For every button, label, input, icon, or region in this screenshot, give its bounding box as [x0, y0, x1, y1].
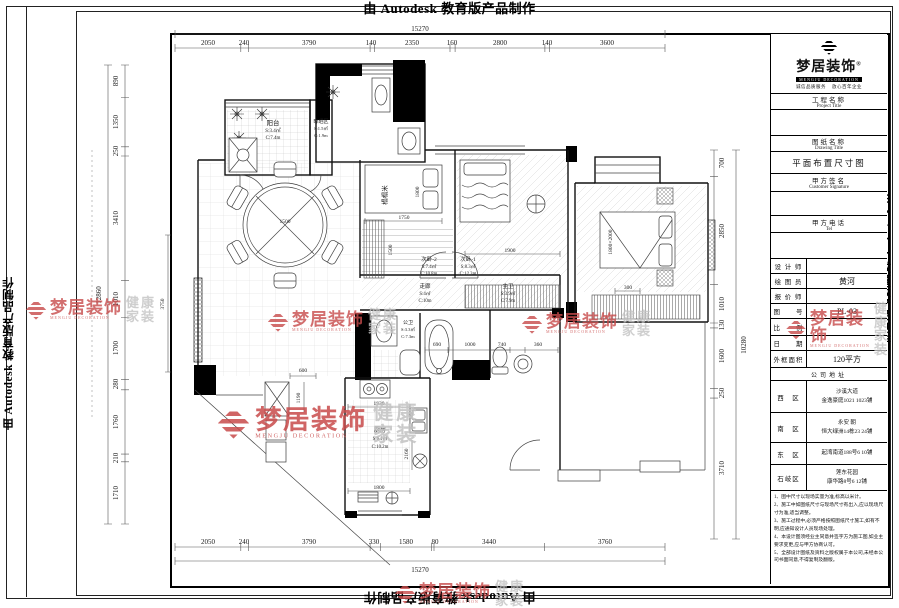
dim-chain-right: 700 2850 1010 130 1600 250 3710 10280 — [710, 150, 748, 539]
notes-list: 1、图中尺寸以现场实量为准,标高以米计。 2、施工中如图纸尺寸与现场尺寸有出入,… — [771, 491, 887, 565]
watermark-diamond-icon — [268, 312, 288, 332]
designer-row: 设 计 师 — [771, 259, 887, 274]
svg-text:330: 330 — [369, 538, 380, 546]
svg-text:140: 140 — [542, 39, 553, 47]
svg-text:1000: 1000 — [465, 342, 476, 348]
note-item: 4、本设计图须经业主同意并签字方为施工图,如业主要求变更,应与甲方协商认可。 — [774, 534, 884, 549]
svg-text:240: 240 — [239, 39, 250, 47]
svg-text:2850: 2850 — [718, 224, 726, 239]
svg-text:280: 280 — [112, 378, 120, 389]
svg-text:S:3.4㎡: S:3.4㎡ — [265, 127, 280, 134]
svg-text:S:7.4㎡: S:7.4㎡ — [422, 263, 437, 270]
svg-text:3750: 3750 — [160, 298, 166, 309]
svg-text:2160: 2160 — [404, 448, 410, 459]
watermark-diamond-icon — [395, 584, 415, 604]
dim-chain-top: 15270 2050 240 3790 140 2350 160 2800 14… — [175, 25, 665, 52]
floor-plan: 15270 2050 240 3790 140 2350 160 2800 14… — [80, 20, 770, 595]
svg-text:1500: 1500 — [388, 244, 394, 255]
dim-chain-left: 890 1350 250 3410 1010 1700 280 1760 210… — [95, 65, 129, 524]
note-item: 3、施工过程中,必须严格按照图纸尺寸施工,如有不明,应通知设计人员现场处理。 — [774, 518, 884, 533]
floorplan-sheet: { "page": {"stamp": "由 Autodesk 教育版产品制作"… — [0, 0, 899, 605]
svg-text:3440: 3440 — [482, 538, 497, 546]
svg-text:走廊: 走廊 — [419, 282, 431, 290]
address-header: 公司地址 — [771, 368, 887, 381]
watermark-logo: 梦居装饰MENGJU DECORATION 健康家装 — [395, 580, 525, 607]
watermark-logo: 梦居装饰MENGJU DECORATION 健康家装 — [786, 302, 899, 357]
svg-text:1800: 1800 — [415, 186, 421, 197]
svg-text:700: 700 — [718, 157, 726, 168]
svg-text:1010: 1010 — [718, 297, 726, 312]
company-name: 梦居装饰® — [796, 56, 861, 76]
watermark-diamond-icon — [218, 408, 249, 439]
svg-text:250: 250 — [718, 387, 726, 398]
svg-text:1700: 1700 — [112, 341, 120, 356]
company-name-en: MENGJU DECORATION — [796, 77, 862, 83]
svg-text:2350: 2350 — [405, 39, 420, 47]
svg-text:210: 210 — [112, 452, 120, 463]
svg-text:1580: 1580 — [399, 538, 414, 546]
guestbath-floor — [373, 350, 398, 378]
svg-text:C:10.2m: C:10.2m — [372, 445, 389, 450]
tel-header: 甲方电话Tel — [771, 216, 887, 233]
watermark-diamond-icon — [786, 319, 806, 339]
dim-chain-bottom: 2050 240 3790 330 1580 80 3440 3760 1527… — [175, 538, 665, 574]
svg-text:690: 690 — [433, 342, 442, 348]
tel-value — [771, 233, 887, 259]
svg-text:C:10m: C:10m — [418, 299, 431, 304]
svg-text:3710: 3710 — [718, 461, 726, 476]
watermark-logo: 梦居装饰MENGJU DECORATION 健康家装 — [268, 308, 398, 335]
note-item: 1、图中尺寸以现场实量为准,标高以米计。 — [774, 494, 884, 501]
svg-text:1800×2000: 1800×2000 — [608, 229, 614, 254]
svg-text:公卫: 公卫 — [403, 320, 413, 326]
project-title-value — [771, 110, 887, 136]
svg-text:2050: 2050 — [201, 39, 216, 47]
svg-text:3790: 3790 — [302, 538, 317, 546]
svg-text:榻榻米: 榻榻米 — [380, 185, 389, 205]
svg-text:160: 160 — [447, 39, 458, 47]
note-item: 5、全部设计图纸及资料之版权属于本公司,未经本公司书面同意,不得复制及翻版。 — [774, 550, 884, 565]
logo-diamond-icon — [821, 39, 837, 55]
address-shiqi-row: 石岐区 莲东花园康华路8号6 12铺 — [771, 465, 887, 491]
company-logo: 梦居装饰® MENGJU DECORATION 诚信品质服务放心百年企业 — [771, 34, 887, 94]
svg-text:次卧-1: 次卧-1 — [460, 255, 476, 263]
address-west-row: 西 区 沙溪大道金逸豪庭1021 1023铺 — [771, 381, 887, 413]
customer-signature-header: 甲方签名Customer Signature — [771, 174, 887, 192]
svg-text:1350: 1350 — [112, 115, 120, 130]
watermark-diamond-icon — [26, 300, 46, 320]
autodesk-stamp-top: 由 Autodesk 教育版产品制作 — [0, 0, 899, 17]
svg-text:3410: 3410 — [112, 211, 120, 226]
svg-text:主卫: 主卫 — [502, 282, 514, 290]
svg-text:C:1.9m: C:1.9m — [314, 133, 328, 138]
svg-text:1760: 1760 — [112, 415, 120, 430]
svg-text:130: 130 — [718, 319, 726, 330]
svg-text:阳台: 阳台 — [267, 118, 280, 127]
svg-text:600: 600 — [299, 368, 308, 374]
svg-text:S:8.3㎡: S:8.3㎡ — [461, 263, 476, 270]
svg-text:3600: 3600 — [600, 39, 615, 47]
svg-text:1750: 1750 — [399, 215, 410, 221]
svg-text:S:1.5㎡: S:1.5㎡ — [314, 125, 328, 131]
svg-text:S:3.3㎡: S:3.3㎡ — [401, 326, 415, 332]
svg-text:2050: 2050 — [201, 538, 216, 546]
drawing-title-header: 图纸名称Drawing Title — [771, 136, 887, 152]
svg-text:15270: 15270 — [411, 25, 429, 33]
svg-text:300: 300 — [624, 285, 633, 291]
company-tagline: 诚信品质服务放心百年企业 — [796, 84, 862, 90]
svg-text:3790: 3790 — [302, 39, 317, 47]
svg-text:C:7.9m: C:7.9m — [501, 299, 516, 304]
svg-text:250: 250 — [112, 145, 120, 156]
watermark-logo: 梦居装饰MENGJU DECORATION 健康家装 — [26, 296, 156, 323]
svg-text:15270: 15270 — [411, 566, 429, 574]
svg-text:S:3.9㎡: S:3.9㎡ — [501, 290, 516, 297]
svg-text:1900: 1900 — [505, 248, 516, 254]
svg-text:C:10.8m: C:10.8m — [421, 272, 438, 277]
svg-text:80: 80 — [432, 538, 440, 546]
watermark-diamond-icon — [522, 314, 542, 334]
note-item: 2、施工中如图纸尺寸与现场尺寸有出入,应以现场尺寸为准,适当调整。 — [774, 502, 884, 517]
svg-text:240: 240 — [239, 538, 250, 546]
svg-text:1600: 1600 — [718, 349, 726, 364]
drawing-title-value: 平面布置尺寸图 — [771, 152, 887, 174]
svg-text:1710: 1710 — [112, 486, 120, 501]
project-title-header: 工程名称Project Title — [771, 94, 887, 110]
svg-text:晾晒区: 晾晒区 — [313, 118, 328, 125]
customer-signature-value — [771, 192, 887, 216]
svg-text:C:7.4m: C:7.4m — [266, 136, 281, 141]
autodesk-stamp-left: 由 Autodesk 教育版产品制作 — [1, 200, 17, 430]
watermark-logo: 梦居装饰MENGJU DECORATION 健康家装 — [522, 310, 652, 337]
svg-text:1800: 1800 — [374, 485, 385, 491]
address-east-row: 东 区 起湾南道188号6 10铺 — [771, 443, 887, 465]
address-south-row: 南 区 永安 朝恒大绿洲14栋23 24铺 — [771, 413, 887, 443]
svg-text:890: 890 — [112, 75, 120, 86]
watermark-logo-large: 梦居装饰MENGJU DECORATION 健康家装 — [218, 402, 420, 444]
svg-text:C:12.3m: C:12.3m — [460, 272, 477, 277]
svg-text:360: 360 — [534, 342, 543, 348]
draftsman-row: 绘 图 员黄河 — [771, 274, 887, 289]
svg-text:10280: 10280 — [740, 336, 748, 354]
svg-text:740: 740 — [498, 342, 507, 348]
svg-text:S:4㎡: S:4㎡ — [419, 290, 430, 297]
svg-text:C:7.3m: C:7.3m — [401, 334, 415, 339]
svg-text:2800: 2800 — [493, 39, 508, 47]
svg-text:3760: 3760 — [598, 538, 613, 546]
svg-text:1500: 1500 — [280, 219, 291, 225]
svg-text:140: 140 — [366, 39, 377, 47]
svg-text:次卧-2: 次卧-2 — [421, 255, 437, 263]
